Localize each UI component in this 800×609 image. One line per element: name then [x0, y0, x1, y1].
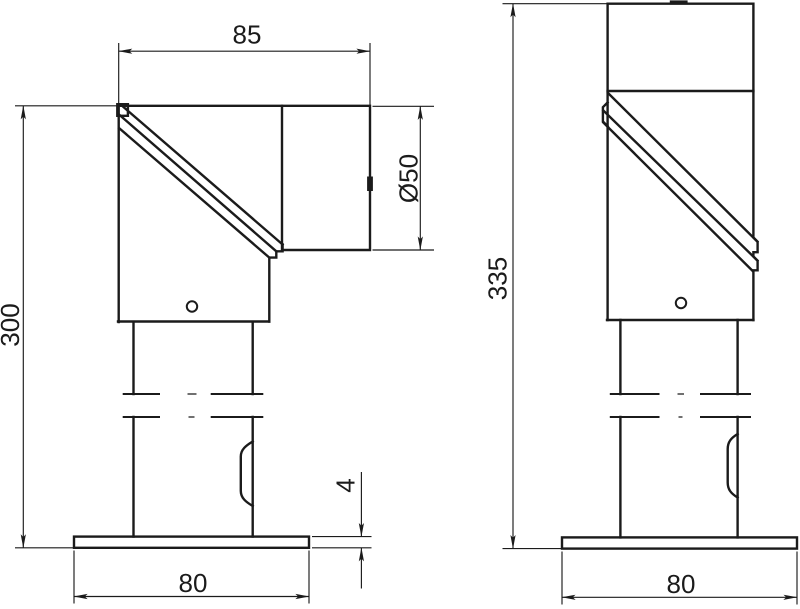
dim-front-base-width: 80	[179, 568, 208, 598]
side-pipe-break-centerline	[678, 394, 685, 417]
technical-drawing-canvas: 85 Ø50 300 4 80	[0, 0, 800, 609]
dim-front-plate-thickness: 4	[331, 478, 361, 492]
lower-pipe-walls	[134, 322, 253, 537]
seam-step-edge	[269, 245, 282, 322]
pipe-break-centerline	[188, 394, 197, 417]
side-lock-tab	[670, 0, 688, 4]
spring-clip	[241, 442, 253, 507]
side-seam-band	[603, 93, 757, 271]
outlet-lock-tab	[367, 177, 373, 192]
fixing-hole	[187, 301, 197, 311]
side-pipe-break-lines	[610, 394, 751, 417]
side-base-plate	[562, 537, 797, 548]
side-lower-pipe-walls	[620, 320, 737, 537]
elbow-pipe-drawing: 85 Ø50 300 4 80	[0, 0, 800, 609]
dim-front-overall-height: 300	[0, 303, 25, 346]
side-body-outline	[608, 4, 758, 320]
dim-4-extension-lines	[312, 537, 372, 548]
dim-335-extension-lines	[503, 4, 607, 549]
dim-front-outlet-diameter: Ø50	[394, 154, 424, 203]
seam-band	[119, 107, 283, 258]
pipe-break-lines	[123, 394, 264, 417]
elbow-outline	[119, 106, 370, 322]
dim-side-base-width: 80	[667, 569, 696, 599]
side-view: 335 80	[483, 0, 798, 604]
dim-85-extension-lines	[119, 43, 370, 105]
dim-side-overall-height: 335	[483, 257, 513, 300]
side-spring-clip	[728, 434, 738, 498]
front-view: 85 Ø50 300 4 80	[0, 20, 434, 604]
dim-front-top-width: 85	[233, 20, 262, 50]
side-fixing-hole	[676, 298, 686, 308]
base-plate	[74, 537, 309, 548]
dim-300-extension-lines	[15, 106, 118, 548]
